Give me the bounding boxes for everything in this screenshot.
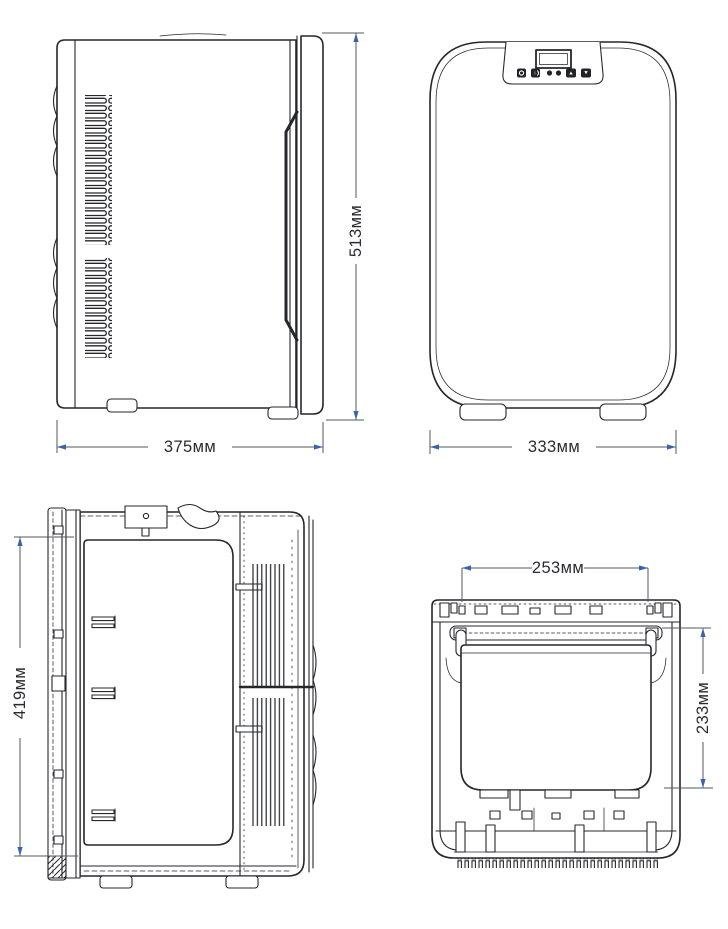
- dim-arrow: [17, 847, 22, 856]
- dim-arrow: [700, 779, 705, 788]
- dim-arrow: [462, 565, 471, 570]
- dim-arrow: [353, 33, 358, 42]
- vent-teeth-row: [456, 858, 660, 868]
- foot: [268, 407, 298, 419]
- dim-label-front-width: 333мм: [528, 438, 580, 456]
- vent-grill-lower: [85, 258, 112, 358]
- door-slab: [301, 36, 323, 414]
- dim-arrow: [314, 444, 323, 449]
- dim-arrow: [57, 444, 66, 449]
- fridge-top-body: [432, 600, 680, 868]
- dim-label-top-depth: 233мм: [694, 682, 712, 734]
- control-panel: [503, 42, 603, 84]
- technical-drawing-sheet: 375мм 513мм: [0, 0, 728, 929]
- condenser-fins-upper: [252, 564, 286, 686]
- inner-door-panel: [84, 540, 233, 845]
- fridge-side-body: [54, 34, 324, 419]
- dim-arrow: [700, 628, 705, 637]
- led-dot: [547, 70, 552, 75]
- dim-arrow: [667, 444, 676, 449]
- foot: [600, 404, 646, 420]
- hinge-rail: [48, 508, 66, 880]
- foot: [460, 404, 506, 420]
- door-seal-rail: [450, 626, 662, 640]
- dim-arrow: [17, 537, 22, 546]
- dim-arrow: [430, 444, 439, 449]
- vent-grill-upper: [85, 95, 112, 245]
- power-icon: [517, 69, 526, 78]
- open-side-view-drawing: 419мм: [0, 480, 370, 929]
- dim-label-open-side-height: 419мм: [11, 667, 29, 719]
- side-view-drawing: 375мм 513мм: [0, 0, 400, 470]
- fridge-front-body: [430, 42, 676, 420]
- fridge-cutaway-body: [48, 505, 316, 889]
- dim-label-side-width: 375мм: [164, 438, 216, 456]
- top-view-drawing: 253мм 233мм: [400, 540, 728, 929]
- dim-arrow: [353, 411, 358, 420]
- inner-cavity: [461, 645, 651, 790]
- foot: [100, 876, 132, 888]
- dim-label-top-width: 253мм: [532, 559, 584, 577]
- led-dot: [556, 70, 561, 75]
- dim-label-side-height: 513мм: [347, 205, 365, 257]
- dim-arrow: [639, 565, 648, 570]
- foot: [226, 876, 258, 888]
- front-view-drawing: 333мм: [400, 0, 728, 470]
- foot: [107, 399, 137, 412]
- condenser-fins-lower: [252, 698, 286, 826]
